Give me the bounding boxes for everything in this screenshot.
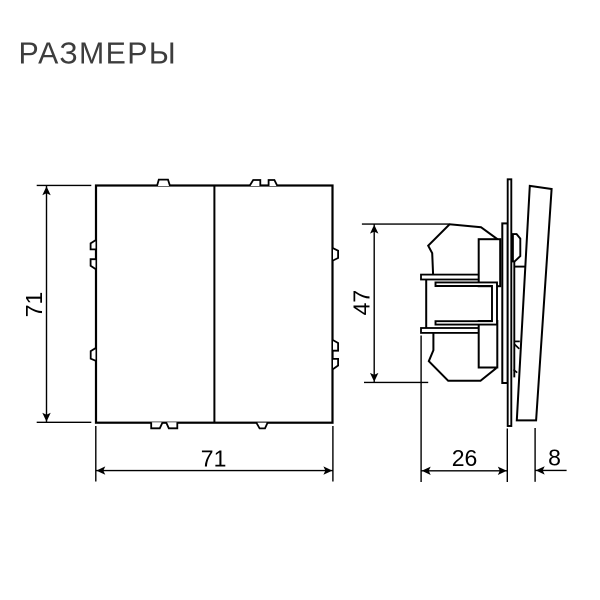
svg-text:8: 8 (548, 444, 561, 470)
svg-text:71: 71 (21, 292, 47, 318)
svg-text:РАЗМЕРЫ: РАЗМЕРЫ (19, 37, 178, 70)
svg-text:47: 47 (349, 290, 375, 316)
svg-text:71: 71 (201, 445, 227, 471)
svg-text:26: 26 (452, 445, 478, 471)
